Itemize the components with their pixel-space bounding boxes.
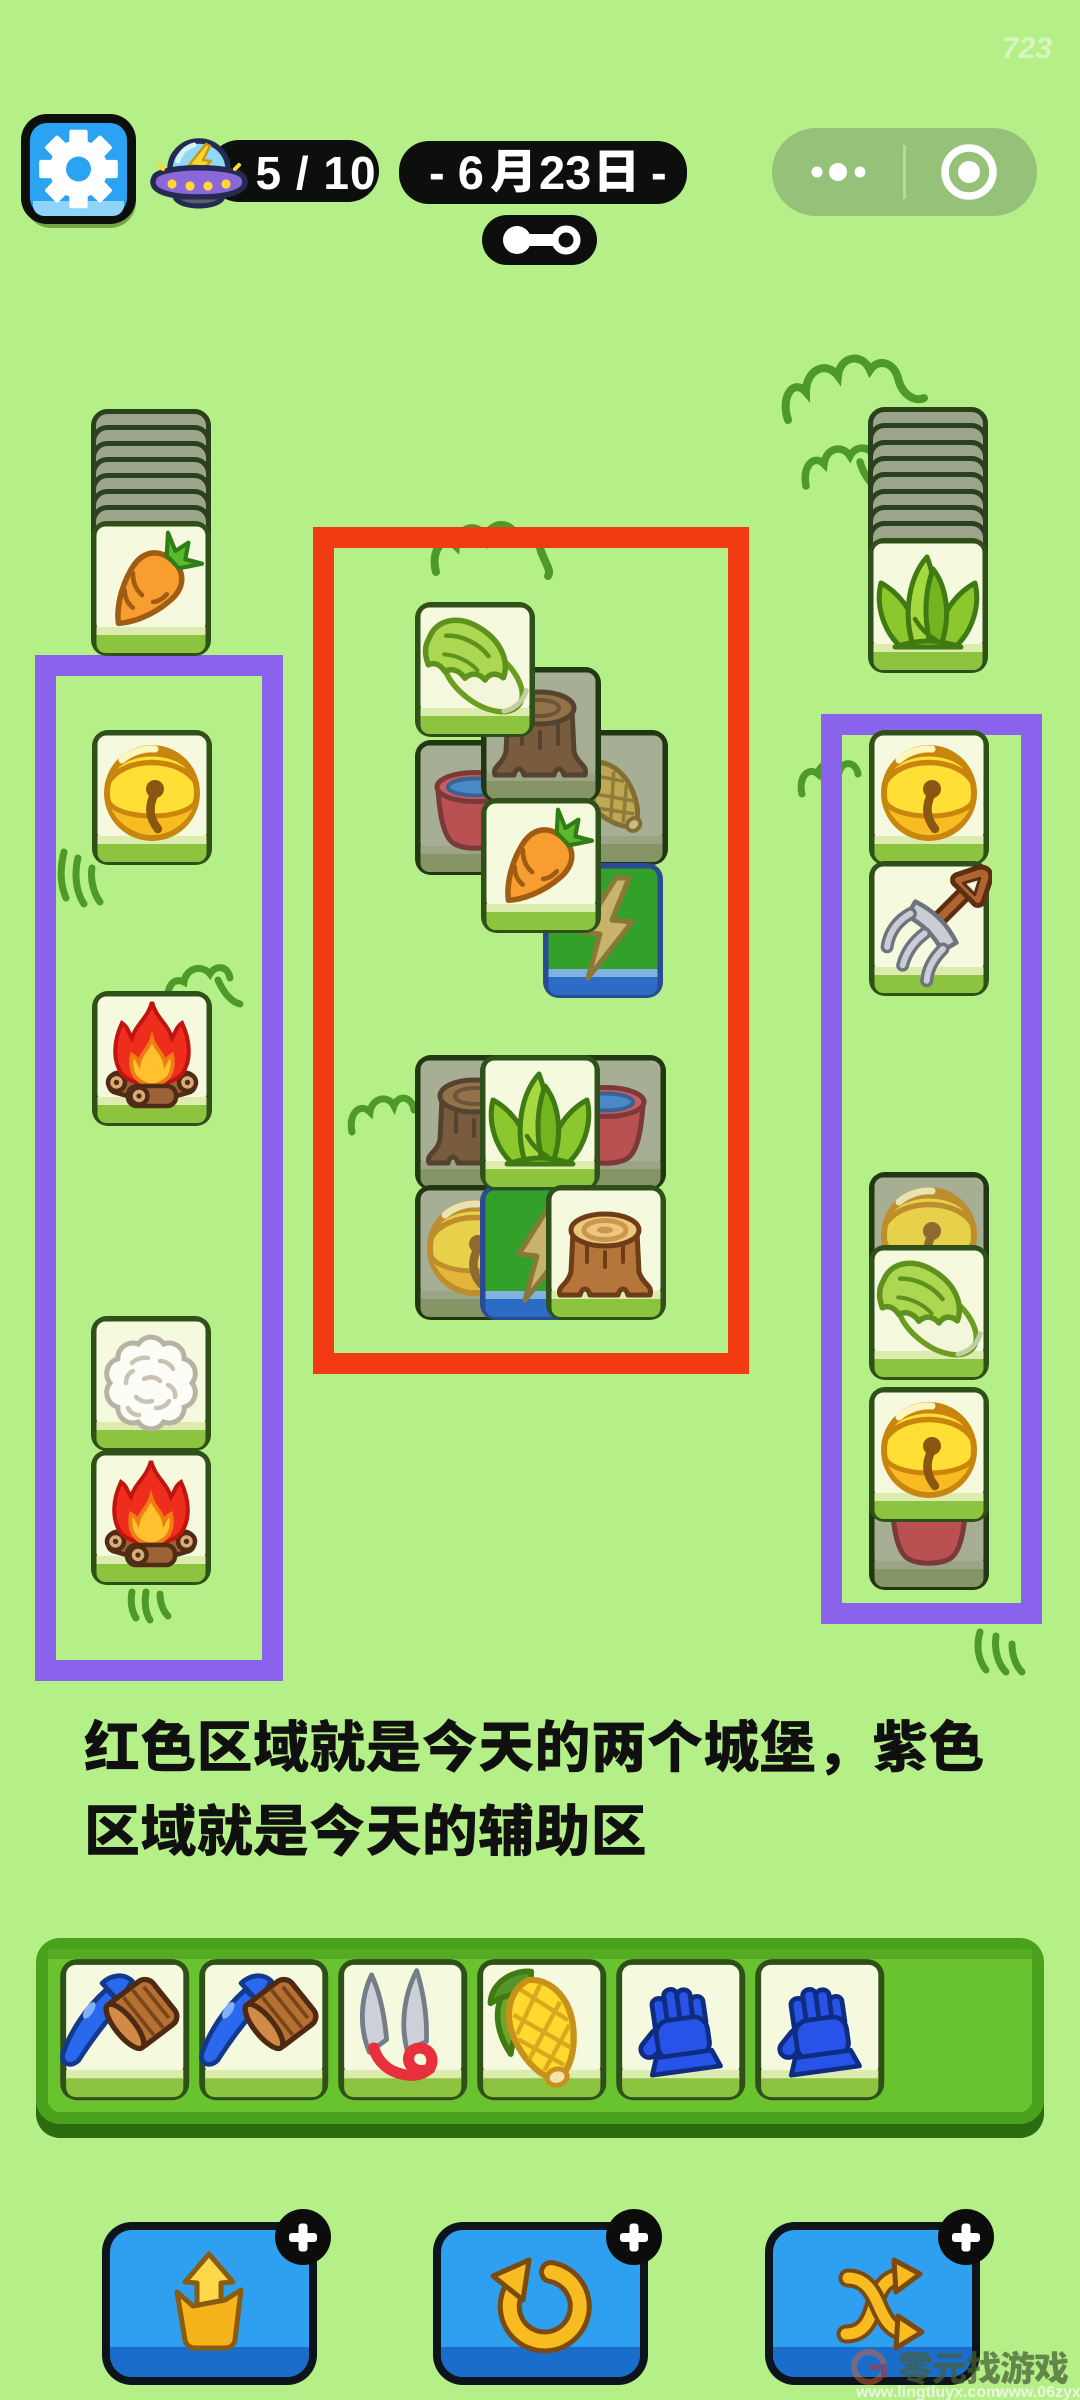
svg-text:723: 723 (1002, 32, 1052, 65)
svg-text:www.lingtluyx.com: www.lingtluyx.com (855, 2384, 1000, 2400)
svg-text:23: 23 (539, 146, 591, 199)
svg-text:5 / 10: 5 / 10 (255, 147, 376, 199)
svg-text:-: - (651, 146, 667, 199)
svg-text:- 6: - 6 (429, 146, 484, 199)
svg-text:www.06zyx.com: www.06zyx.com (995, 2384, 1080, 2400)
